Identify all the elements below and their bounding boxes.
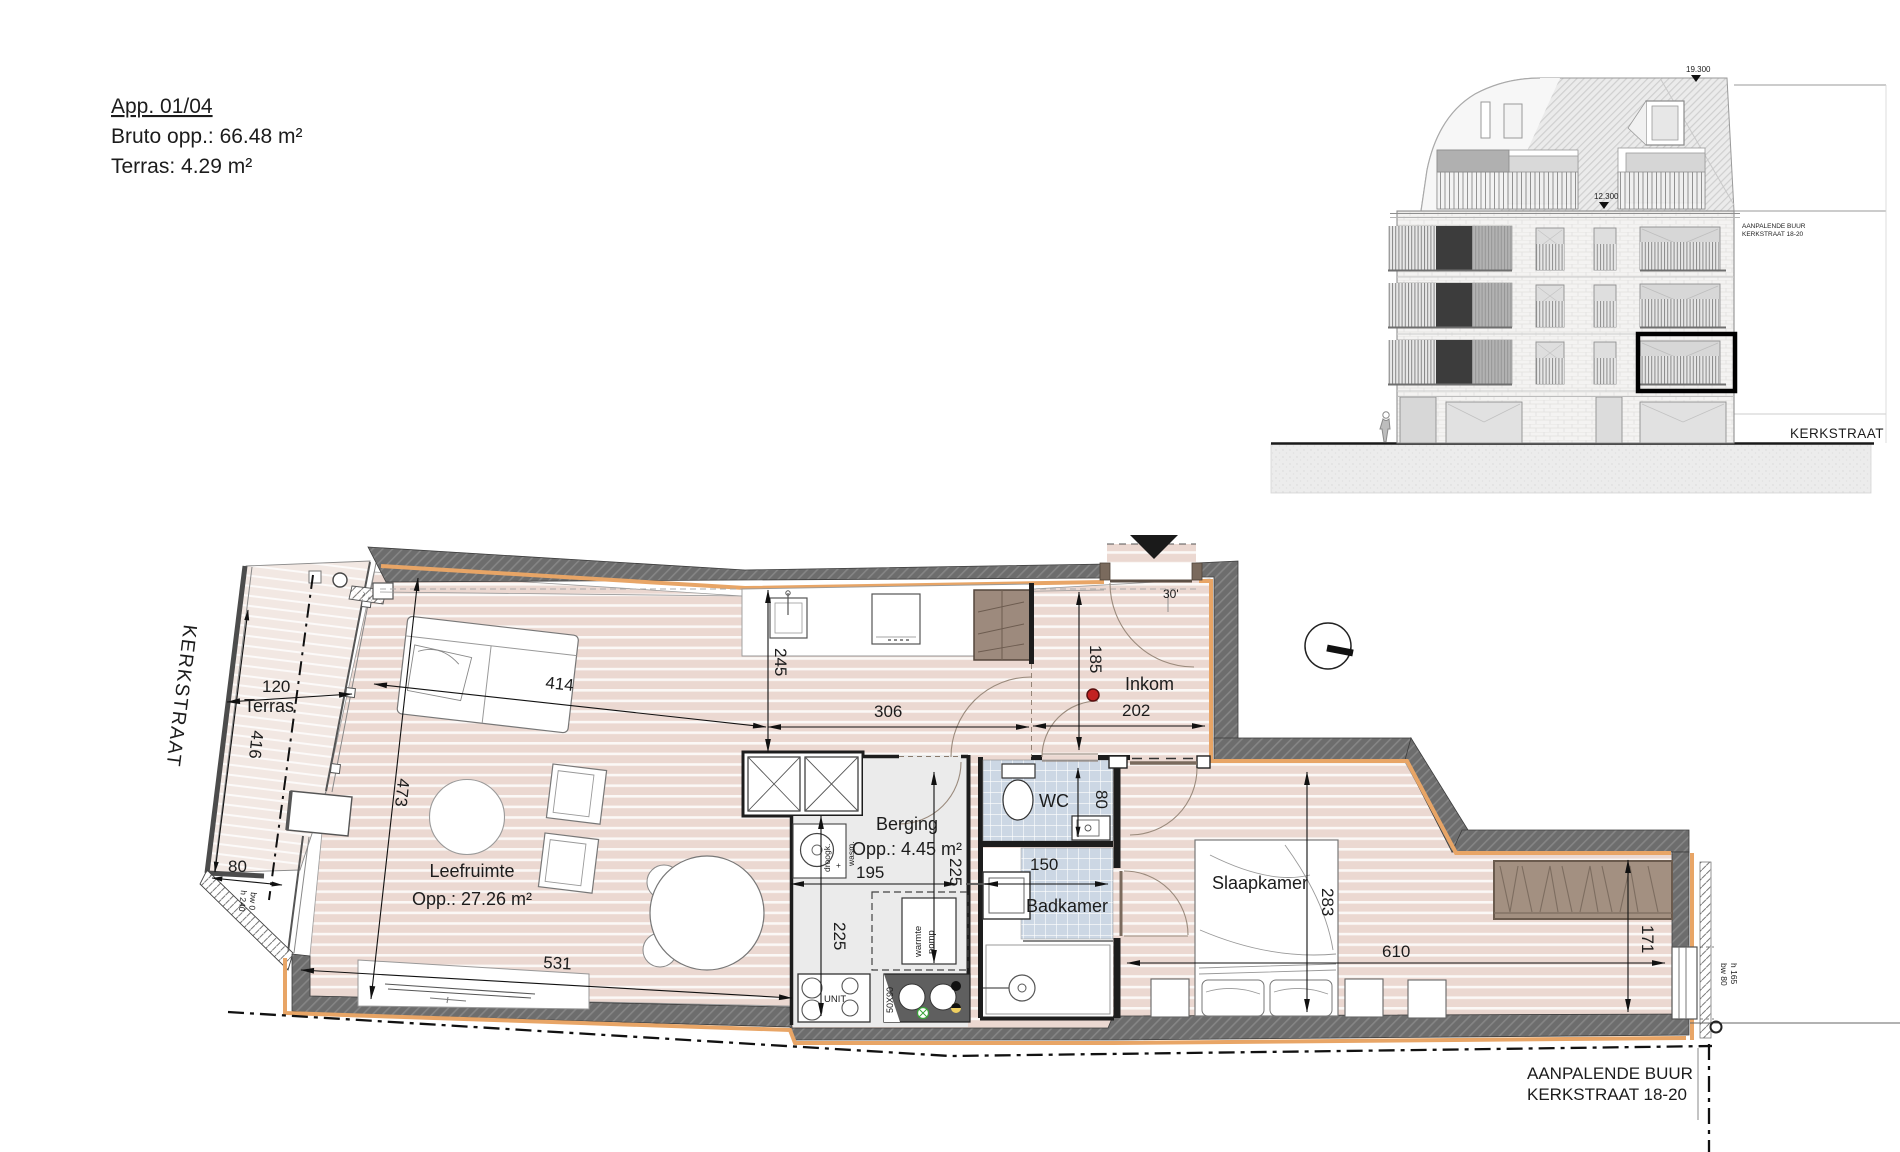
svg-text:150: 150 <box>1030 855 1058 874</box>
svg-text:bw 80: bw 80 <box>1719 963 1729 986</box>
svg-text:AANPALENDE BUUR: AANPALENDE BUUR <box>1527 1064 1693 1083</box>
svg-text:KERKSTRAAT: KERKSTRAAT <box>1790 426 1884 441</box>
svg-text:WC: WC <box>1039 791 1069 811</box>
svg-text:202: 202 <box>1122 701 1150 720</box>
svg-text:19.300: 19.300 <box>1686 65 1711 74</box>
svg-text:droogk.: droogk. <box>822 844 832 872</box>
svg-text:Terras: 4.29 m²: Terras: 4.29 m² <box>111 155 252 178</box>
svg-text:306: 306 <box>874 702 902 721</box>
svg-text:610: 610 <box>1382 942 1410 961</box>
svg-text:531: 531 <box>543 953 572 973</box>
svg-text:Opp.: 4.45 m²: Opp.: 4.45 m² <box>852 839 962 859</box>
svg-text:473: 473 <box>391 778 413 808</box>
svg-text:AANPALENDE BUUR: AANPALENDE BUUR <box>1742 223 1806 230</box>
svg-text:KERKSTRAAT 18-20: KERKSTRAAT 18-20 <box>1742 231 1804 238</box>
svg-text:225: 225 <box>830 922 849 950</box>
svg-text:UNIT: UNIT <box>824 994 846 1005</box>
svg-text:Leefruimte: Leefruimte <box>429 861 514 881</box>
svg-text:pomp: pomp <box>926 930 937 954</box>
svg-text:App. 01/04: App. 01/04 <box>111 95 213 118</box>
svg-text:Slaapkamer: Slaapkamer <box>1212 873 1308 893</box>
svg-text:h 165: h 165 <box>1729 963 1739 985</box>
svg-text:KERKSTRAAT: KERKSTRAAT <box>162 623 201 768</box>
svg-text:225: 225 <box>946 858 965 886</box>
svg-text:80: 80 <box>228 857 247 876</box>
svg-text:195: 195 <box>856 863 884 882</box>
svg-text:Opp.: 27.26 m²: Opp.: 27.26 m² <box>412 889 532 909</box>
svg-text:12.300: 12.300 <box>1594 192 1619 201</box>
svg-text:Inkom: Inkom <box>1125 674 1174 694</box>
svg-text:120: 120 <box>262 677 290 696</box>
svg-text:416: 416 <box>245 730 267 760</box>
svg-text:+: + <box>833 863 843 868</box>
svg-text:80: 80 <box>1092 790 1111 809</box>
svg-text:50X90: 50X90 <box>885 987 895 1013</box>
svg-text:bw 0: bw 0 <box>247 892 259 911</box>
svg-text:h 240: h 240 <box>237 890 249 912</box>
svg-text:185: 185 <box>1086 645 1105 673</box>
svg-text:414: 414 <box>545 673 575 695</box>
svg-text:245: 245 <box>771 648 790 676</box>
svg-text:171: 171 <box>1638 925 1657 953</box>
svg-text:KERKSTRAAT 18-20: KERKSTRAAT 18-20 <box>1527 1085 1687 1104</box>
svg-text:283: 283 <box>1318 888 1337 916</box>
svg-text:warmte: warmte <box>913 926 924 958</box>
svg-text:Berging: Berging <box>876 814 938 834</box>
svg-text:Terras: Terras <box>244 696 294 716</box>
svg-text:Bruto opp.: 66.48 m²: Bruto opp.: 66.48 m² <box>111 125 302 148</box>
svg-text:30': 30' <box>1163 587 1179 601</box>
svg-text:Badkamer: Badkamer <box>1026 896 1108 916</box>
